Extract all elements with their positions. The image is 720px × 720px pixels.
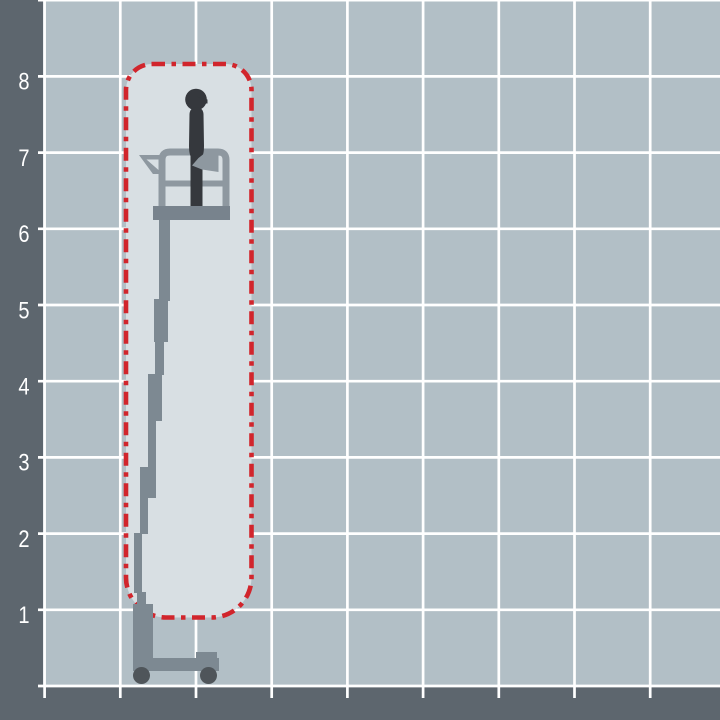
y-axis-label-4: 4	[18, 373, 29, 400]
y-axis-label-8: 8	[18, 68, 29, 95]
y-axis-label-2: 2	[18, 525, 29, 552]
mast-section	[155, 342, 164, 375]
y-axis-label-1: 1	[18, 601, 29, 628]
working-envelope-region	[126, 64, 252, 618]
x-axis-bar	[0, 687, 720, 720]
mast-section	[148, 420, 156, 498]
mast-section	[134, 533, 142, 593]
wheel	[200, 667, 217, 684]
diagram-canvas: 8 7 6 5 4 3 2 1	[0, 0, 720, 720]
mast-section	[159, 220, 170, 301]
y-axis-label-3: 3	[18, 449, 29, 476]
working-envelope-diagram: 8 7 6 5 4 3 2 1	[0, 0, 720, 720]
chassis-step	[196, 652, 217, 659]
platform-floor	[153, 206, 230, 220]
mast-foot	[137, 592, 146, 605]
y-axis-label-6: 6	[18, 220, 29, 247]
mast-joint	[148, 374, 162, 421]
y-axis-label-7: 7	[18, 144, 29, 171]
y-axis-label-5: 5	[18, 296, 29, 323]
wheel	[133, 667, 150, 684]
mast-section	[140, 467, 148, 534]
mast-joint	[154, 299, 168, 342]
mast-base-column	[133, 604, 153, 664]
grid-background	[0, 0, 720, 720]
